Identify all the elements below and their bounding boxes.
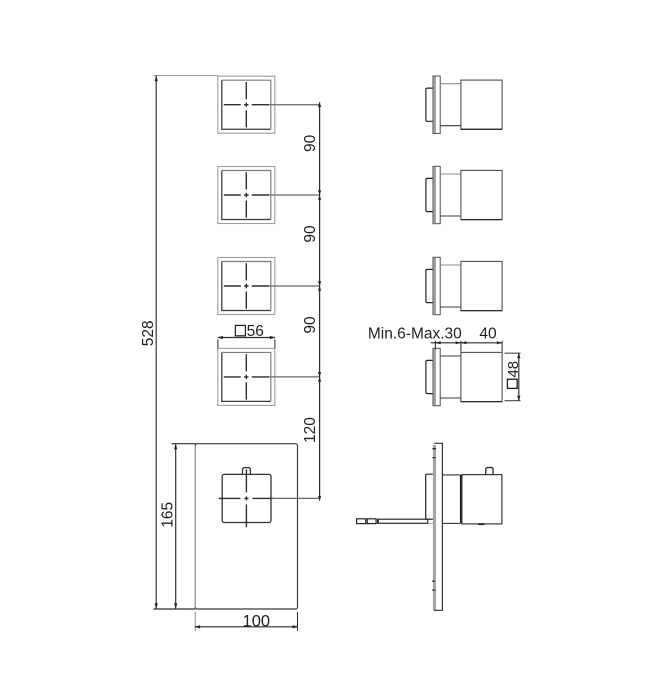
svg-text:48: 48	[505, 361, 522, 378]
svg-text:Min.6-Max.30: Min.6-Max.30	[368, 325, 462, 342]
svg-text:120: 120	[302, 417, 319, 443]
svg-text:90: 90	[302, 225, 319, 243]
svg-text:528: 528	[140, 320, 157, 346]
svg-text:90: 90	[302, 316, 319, 334]
svg-text:100: 100	[243, 612, 271, 630]
svg-text:165: 165	[160, 502, 177, 528]
svg-text:90: 90	[302, 134, 319, 152]
svg-text:40: 40	[479, 325, 497, 342]
